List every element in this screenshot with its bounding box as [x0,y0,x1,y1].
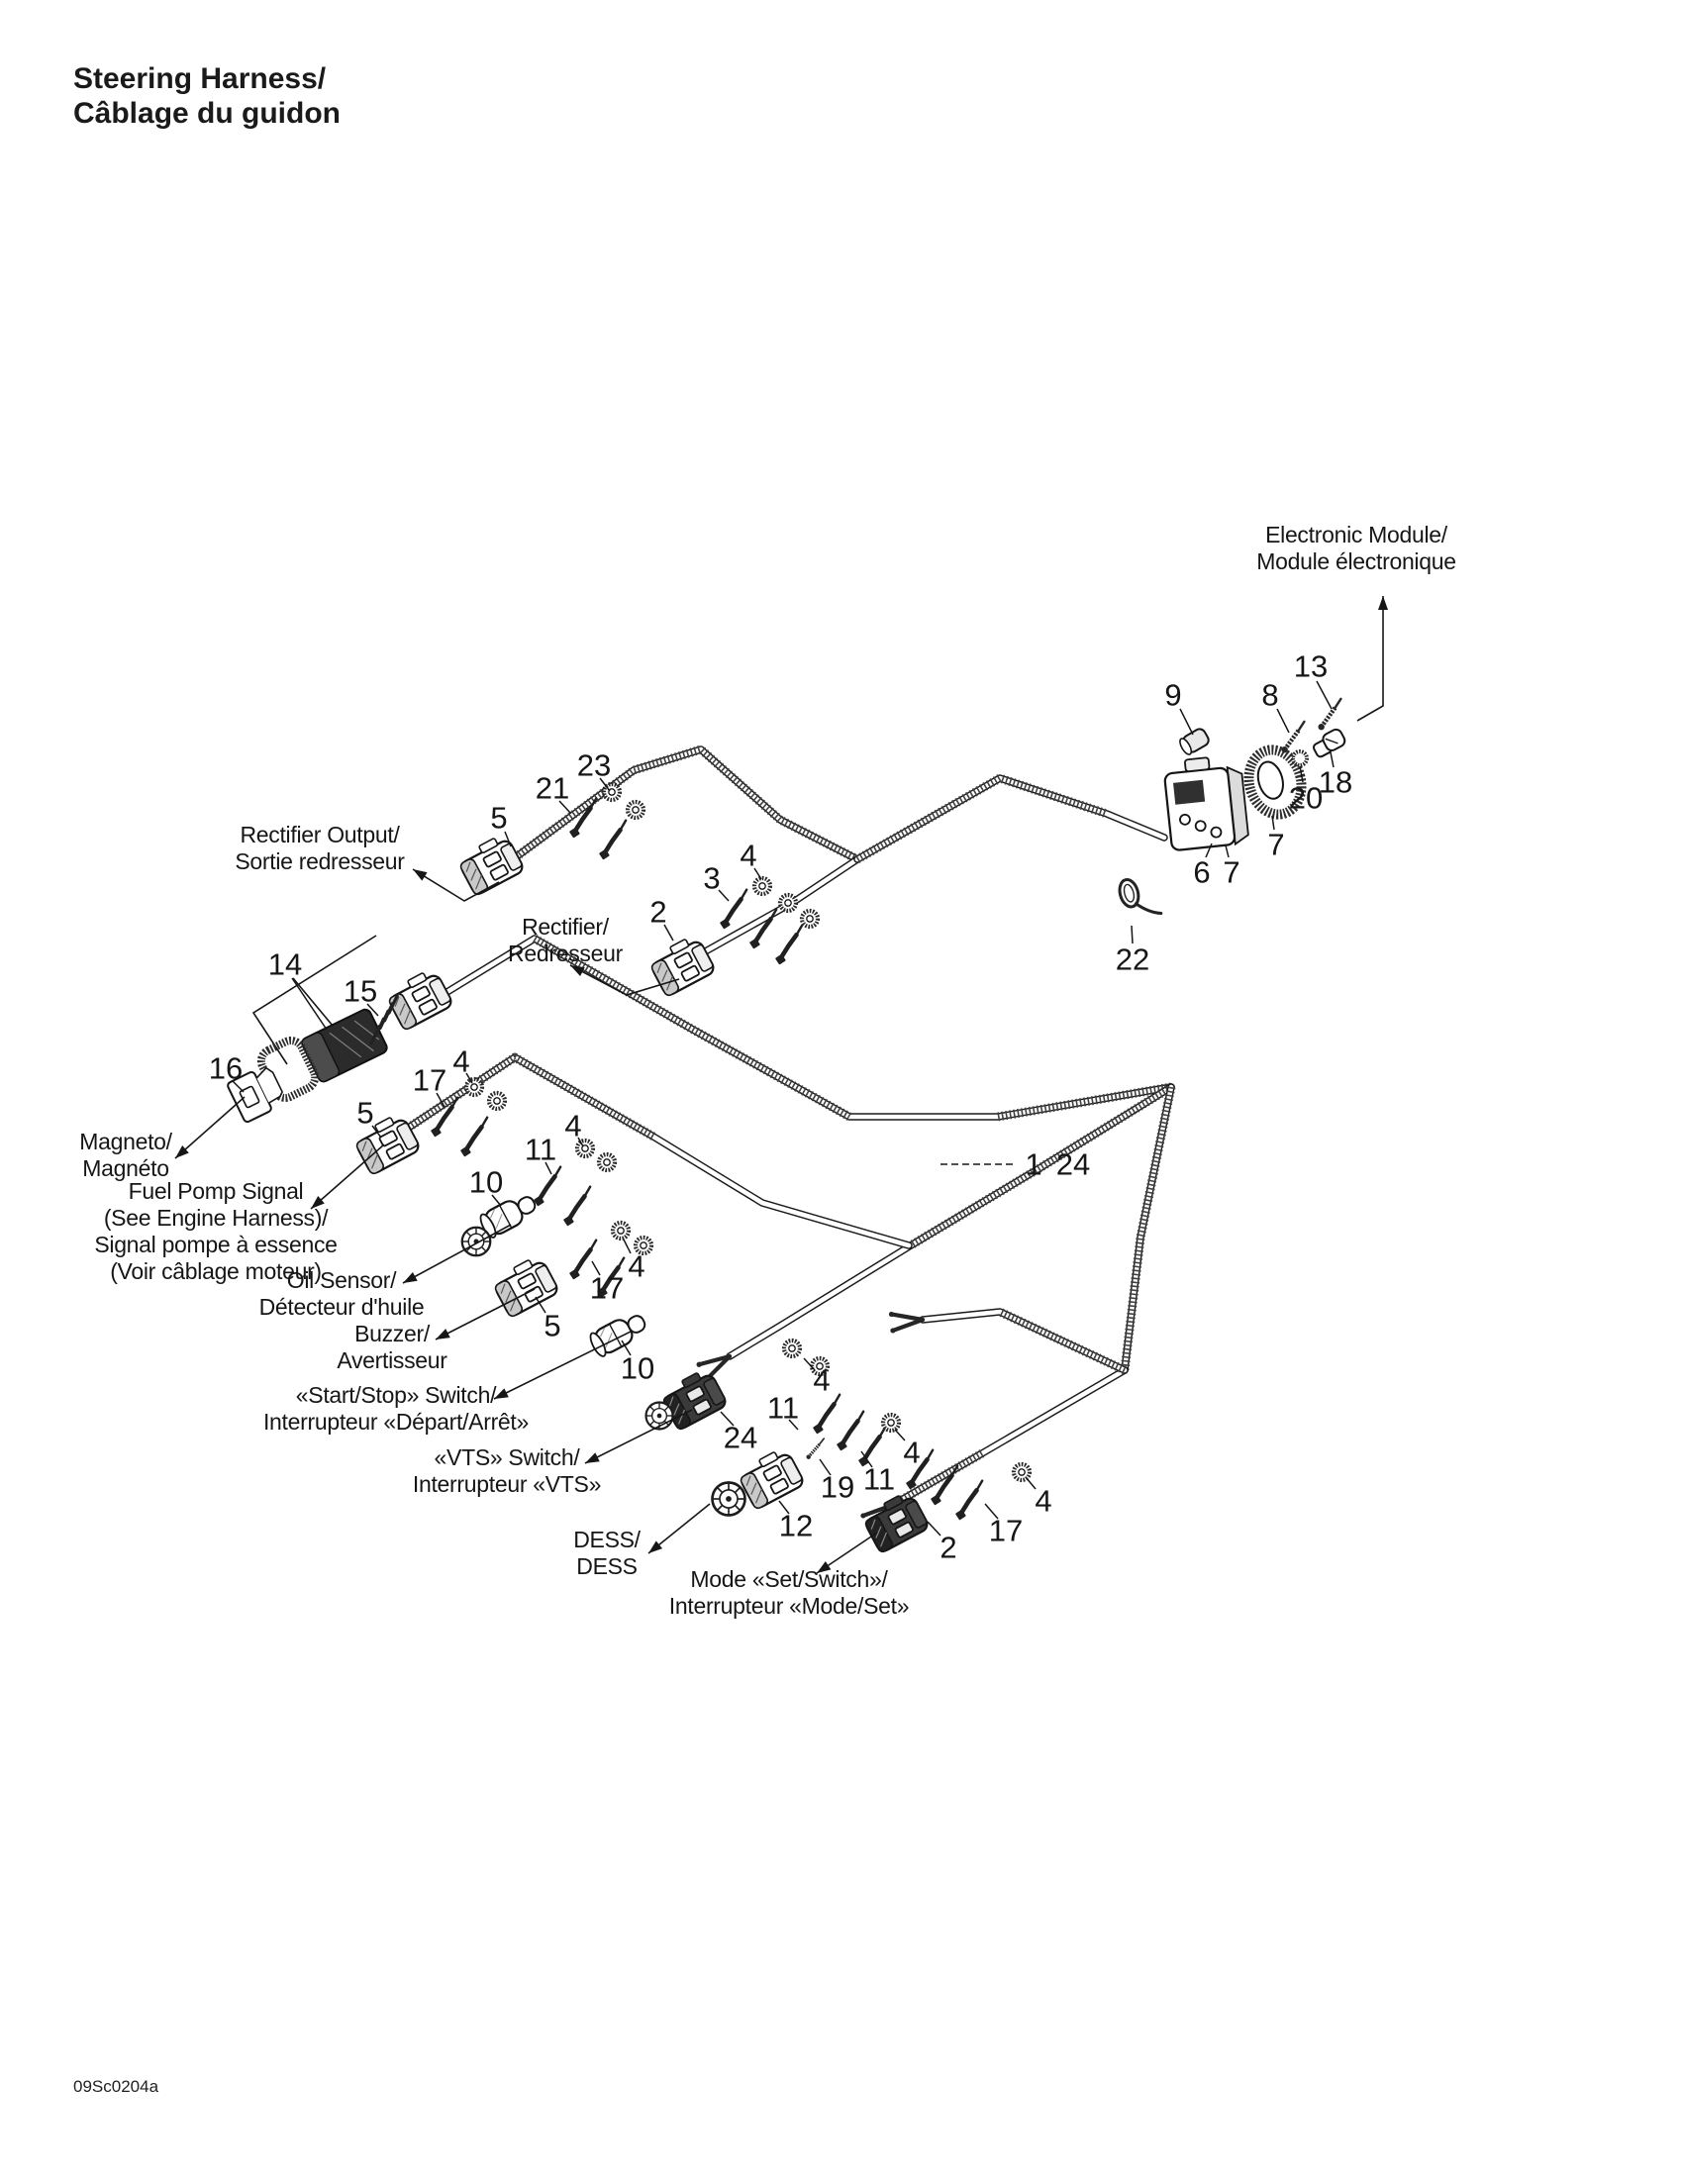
label-dess-line: DESS [576,1553,637,1579]
terminal-pin-body [858,1437,886,1459]
label-mode-set-switch-line: Mode «Set/Switch»/ [690,1566,888,1592]
callout-24: 24 [1056,1147,1090,1182]
callout-4: 4 [628,1249,644,1284]
terminal-pin-body [955,1490,983,1513]
label-fuel-pump-signal-line: (See Engine Harness)/ [104,1205,329,1231]
harness-wire-core [923,1312,1125,1370]
part-ring-icon [780,895,796,911]
callout-11: 11 [863,1462,895,1497]
harness-diagram: Electronic Module/Module électroniqueRec… [0,0,1683,2184]
arrowhead-buzzer [436,1329,450,1340]
disc-center [726,1496,732,1502]
terminal-pin-body [720,899,747,922]
callout-16: 16 [209,1051,243,1086]
terminal-pin-body [775,935,803,957]
wire-tip-end [860,1513,865,1518]
arrowhead-oil-sensor [403,1272,418,1283]
label-rectifier-line: Redresseur [508,941,624,966]
label-start-stop-switch-line: Interrupteur «Départ/Arrêt» [263,1409,529,1435]
seal-ring-small-hole [494,1098,500,1104]
seal-ring-small-hole [1019,1469,1025,1475]
callout-4: 4 [813,1363,830,1398]
terminal-pin-body [534,1176,561,1199]
part-disc-icon [646,1403,673,1430]
seal-ring-small-hole [604,1159,610,1165]
callout-12: 12 [779,1509,813,1543]
label-vts-switch-line: Interrupteur «VTS» [413,1471,601,1497]
label-rectifier-output: Rectifier Output/Sortie redresseur [235,822,405,874]
part-housing-icon [737,1446,806,1510]
disc-center [657,1414,662,1419]
label-fuel-pump-signal-line: Fuel Pomp Signal [129,1178,304,1204]
part-ring-icon [599,1154,615,1170]
terminal-pin-body [563,1196,591,1219]
arrowhead-vts-switch [585,1452,600,1463]
part-pin-icon [806,1395,851,1435]
module-screen [1173,780,1205,805]
part-disc-icon [462,1228,491,1256]
leader-electronic-module [1357,596,1383,721]
seal-ring-small-hole [888,1420,894,1426]
label-vts-switch-line: «VTS» Switch/ [435,1444,581,1470]
callout-4: 4 [1035,1484,1051,1519]
part-rod-icon [802,1439,829,1460]
callout-17: 17 [413,1063,446,1098]
module-front [1164,767,1236,850]
part-ring-icon [802,911,818,927]
label-magneto-line: Magneto/ [79,1129,172,1154]
part-ring-icon [613,1223,629,1239]
leader-fuel-pump-signal [311,1144,384,1209]
callout-10: 10 [469,1165,503,1200]
part-pin-icon [592,821,638,860]
arrowhead-start-stop-switch [494,1388,509,1399]
label-dess: DESS/DESS [573,1527,641,1579]
wire-tip-end [696,1362,701,1367]
label-oil-sensor-line: Détecteur d'huile [259,1294,425,1320]
callout-13: 13 [1294,649,1328,684]
label-buzzer-line: Buzzer/ [354,1321,431,1346]
label-fuel-pump-signal-line: Signal pompe à essence [94,1232,337,1257]
seal-ring-small-hole [759,883,765,889]
leader-start-stop-switch [494,1331,633,1399]
seal-ring-small-hole [641,1242,646,1248]
label-mode-set-switch-line: Interrupteur «Mode/Set» [669,1593,909,1619]
terminal-pin-body [813,1404,841,1427]
screw-tip [819,1439,826,1443]
module-button [1179,814,1190,825]
seal-ring-small-hole [807,916,813,922]
callout-leader-2 [928,1522,940,1536]
module-tab [1185,757,1210,771]
part-housing-dark-icon [861,1490,931,1553]
label-buzzer: Buzzer/Avertisseur [337,1321,447,1373]
part-ring-icon [466,1079,482,1095]
callout-4: 4 [740,839,756,873]
part-pin-icon [830,1412,875,1451]
part-ring-icon [754,878,770,894]
part-disc-icon [713,1483,745,1516]
nut-shape [1293,751,1307,765]
callout-22: 22 [1116,943,1149,977]
screw-tip [1334,699,1343,707]
callout-18: 18 [1319,765,1352,800]
callout-17: 17 [989,1514,1023,1548]
seal-ring-small-hole [789,1345,795,1351]
harness-wire-core [857,778,1164,859]
arrowhead-rectifier-output [413,869,428,881]
part-rod-icon [1312,699,1349,732]
part-ring-icon [784,1340,800,1356]
module-button [1195,821,1206,832]
part-ring-icon [628,802,643,818]
page: Steering Harness/ Câblage du guidon Elec… [0,0,1683,2184]
callout-1: 1 [1025,1147,1041,1182]
label-rectifier-line: Rectifier/ [522,914,610,940]
callout-19: 19 [821,1470,854,1505]
callout-3: 3 [703,861,720,896]
terminal-pin-body [837,1421,864,1443]
label-electronic-module-line: Electronic Module/ [1265,522,1448,547]
part-housing-icon [647,934,717,997]
callout-23: 23 [577,748,611,783]
part-pin-icon [556,1187,602,1227]
label-dess-line: DESS/ [573,1527,641,1552]
part-module-icon [1163,754,1249,851]
callout-11: 11 [525,1133,556,1167]
callout-4: 4 [903,1436,920,1470]
callout-10: 10 [621,1351,654,1386]
leader-buzzer [436,1289,535,1340]
label-start-stop-switch-line: «Start/Stop» Switch/ [296,1382,497,1408]
label-oil-sensor-line: Oil Sensor/ [287,1267,397,1293]
module-button [1211,827,1222,838]
part-ring-icon [1014,1464,1030,1480]
part-pin-icon [453,1118,499,1157]
callout-7: 7 [1267,828,1284,862]
label-buzzer-line: Avertisseur [337,1347,447,1373]
part-box-dark-icon [300,1008,388,1083]
callout-2: 2 [940,1531,956,1565]
callout-8: 8 [1261,678,1278,713]
part-ring-icon [883,1415,899,1431]
callout-7: 7 [1223,855,1239,890]
callout-5: 5 [356,1096,373,1131]
screw-tip [1297,722,1307,730]
label-electronic-module-line: Module électronique [1256,548,1455,574]
part-tie-icon [1117,873,1161,923]
seal-ring-small-hole [618,1228,624,1234]
screw-shank [1280,730,1304,749]
callout-21: 21 [536,771,569,806]
doc-code: 09Sc0204a [73,2077,158,2097]
harness-wire-core [1125,1087,1171,1370]
callout-24: 24 [724,1421,757,1455]
label-start-stop-switch: «Start/Stop» Switch/Interrupteur «Départ… [263,1382,529,1435]
screw-shank [1317,707,1340,727]
leader-vts-switch [585,1410,692,1463]
callout-20: 20 [1289,781,1323,816]
callout-4: 4 [452,1044,469,1079]
callout-9: 9 [1164,678,1181,713]
seal-ring-small-hole [471,1084,477,1090]
wire-tip [891,1314,923,1320]
cable-tie-tail [1136,898,1160,919]
cable-tie-loop-inner [1123,883,1136,903]
label-magneto: Magneto/Magnéto [79,1129,172,1181]
callout-leader-8 [1277,709,1289,733]
label-rectifier-output-line: Sortie redresseur [235,848,405,874]
part-nut-icon [1293,751,1307,765]
part-boot-icon [1178,727,1211,756]
harness-wire-core [893,1370,1125,1505]
terminal-pin-body [599,830,627,852]
callout-leader-9 [1180,709,1193,735]
arrowhead-electronic-module [1378,596,1388,610]
seal-ring-small-hole [633,807,639,813]
wire-tip-end [889,1312,894,1317]
callout-2: 2 [649,895,666,930]
grommet-hole [1254,759,1287,802]
part-pin-icon [948,1481,994,1521]
label-rectifier: Rectifier/Redresseur [508,914,624,966]
callout-5: 5 [490,801,507,836]
label-electronic-module: Electronic Module/Module électronique [1256,522,1455,574]
label-mode-set-switch: Mode «Set/Switch»/Interrupteur «Mode/Set… [669,1566,909,1619]
callout-6: 6 [1193,855,1210,890]
callout-5: 5 [544,1309,560,1343]
callout-leader-22 [1132,926,1133,943]
wire-tip [893,1320,923,1331]
wire-tip-end [890,1328,895,1333]
callout-17: 17 [590,1271,624,1306]
callout-leader-14 [292,978,327,1030]
seal-ring-small-hole [785,900,791,906]
callout-15: 15 [344,974,377,1009]
callout-4: 4 [564,1109,581,1143]
callout-11: 11 [767,1391,799,1426]
arrowhead-dess [648,1540,662,1553]
callout-14: 14 [268,947,302,982]
part-lump-icon [1311,728,1347,758]
part-ring-icon [489,1093,505,1109]
terminal-pin-body [460,1127,488,1149]
leader-magneto [175,1097,245,1158]
callout-leader-13 [1317,681,1332,709]
leader-oil-sensor [403,1225,511,1283]
part-pin-icon [768,926,814,965]
label-vts-switch: «VTS» Switch/Interrupteur «VTS» [413,1444,601,1497]
label-rectifier-output-line: Rectifier Output/ [240,822,400,847]
